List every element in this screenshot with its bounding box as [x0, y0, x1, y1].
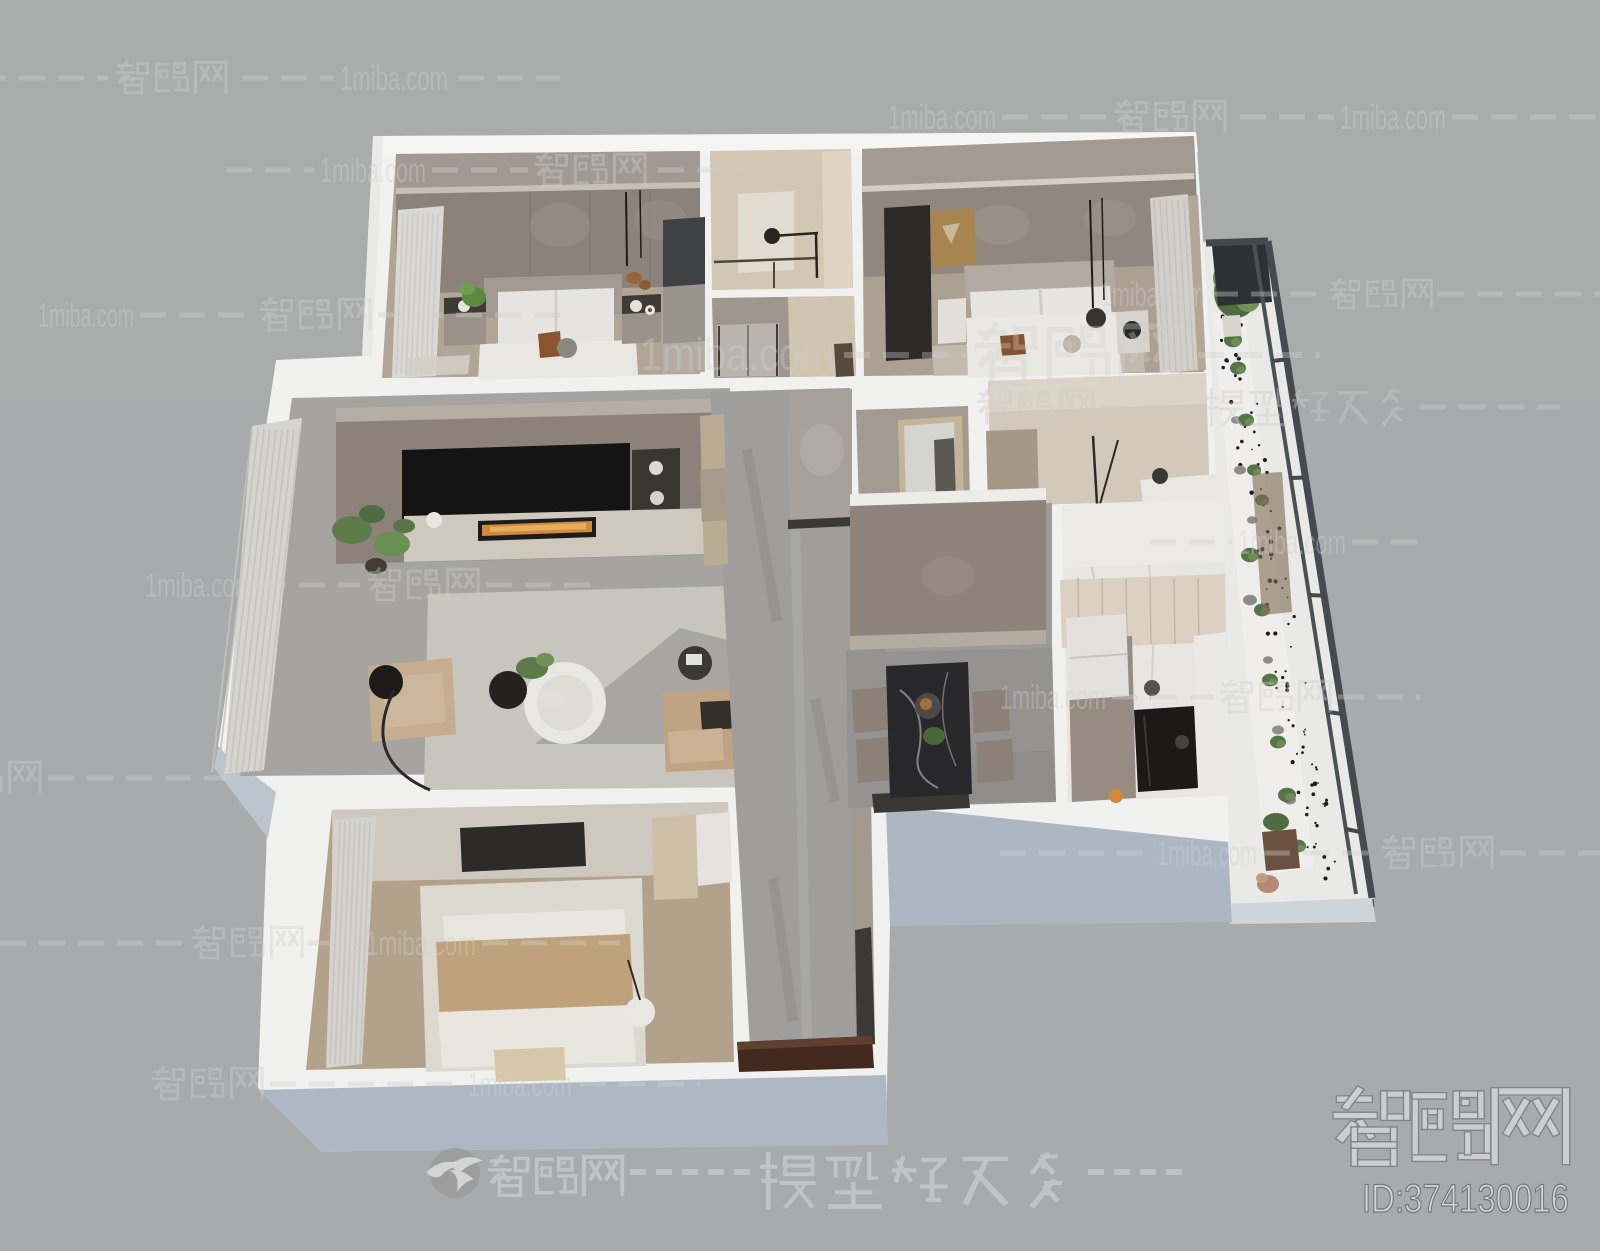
svg-text:1miba.com: 1miba.com — [340, 60, 448, 98]
svg-text:1miba.com: 1miba.com — [888, 99, 996, 137]
svg-text:1miba.com: 1miba.com — [320, 152, 426, 190]
svg-text:1miba.com: 1miba.com — [1340, 99, 1446, 137]
svg-text:1miba.com: 1miba.com — [145, 567, 253, 605]
svg-text:1miba.com: 1miba.com — [640, 328, 834, 380]
svg-text:1miba.com: 1miba.com — [1238, 524, 1346, 562]
svg-text:1miba.com: 1miba.com — [1000, 679, 1106, 717]
svg-text:1miba.com: 1miba.com — [366, 925, 476, 963]
svg-text:1miba.com: 1miba.com — [468, 1066, 572, 1104]
svg-text:ID:374130016: ID:374130016 — [1362, 1177, 1569, 1221]
svg-text:1miba.com: 1miba.com — [1100, 276, 1205, 314]
svg-text:1miba.com: 1miba.com — [38, 297, 134, 335]
svg-text:1miba.com: 1miba.com — [1157, 835, 1257, 873]
